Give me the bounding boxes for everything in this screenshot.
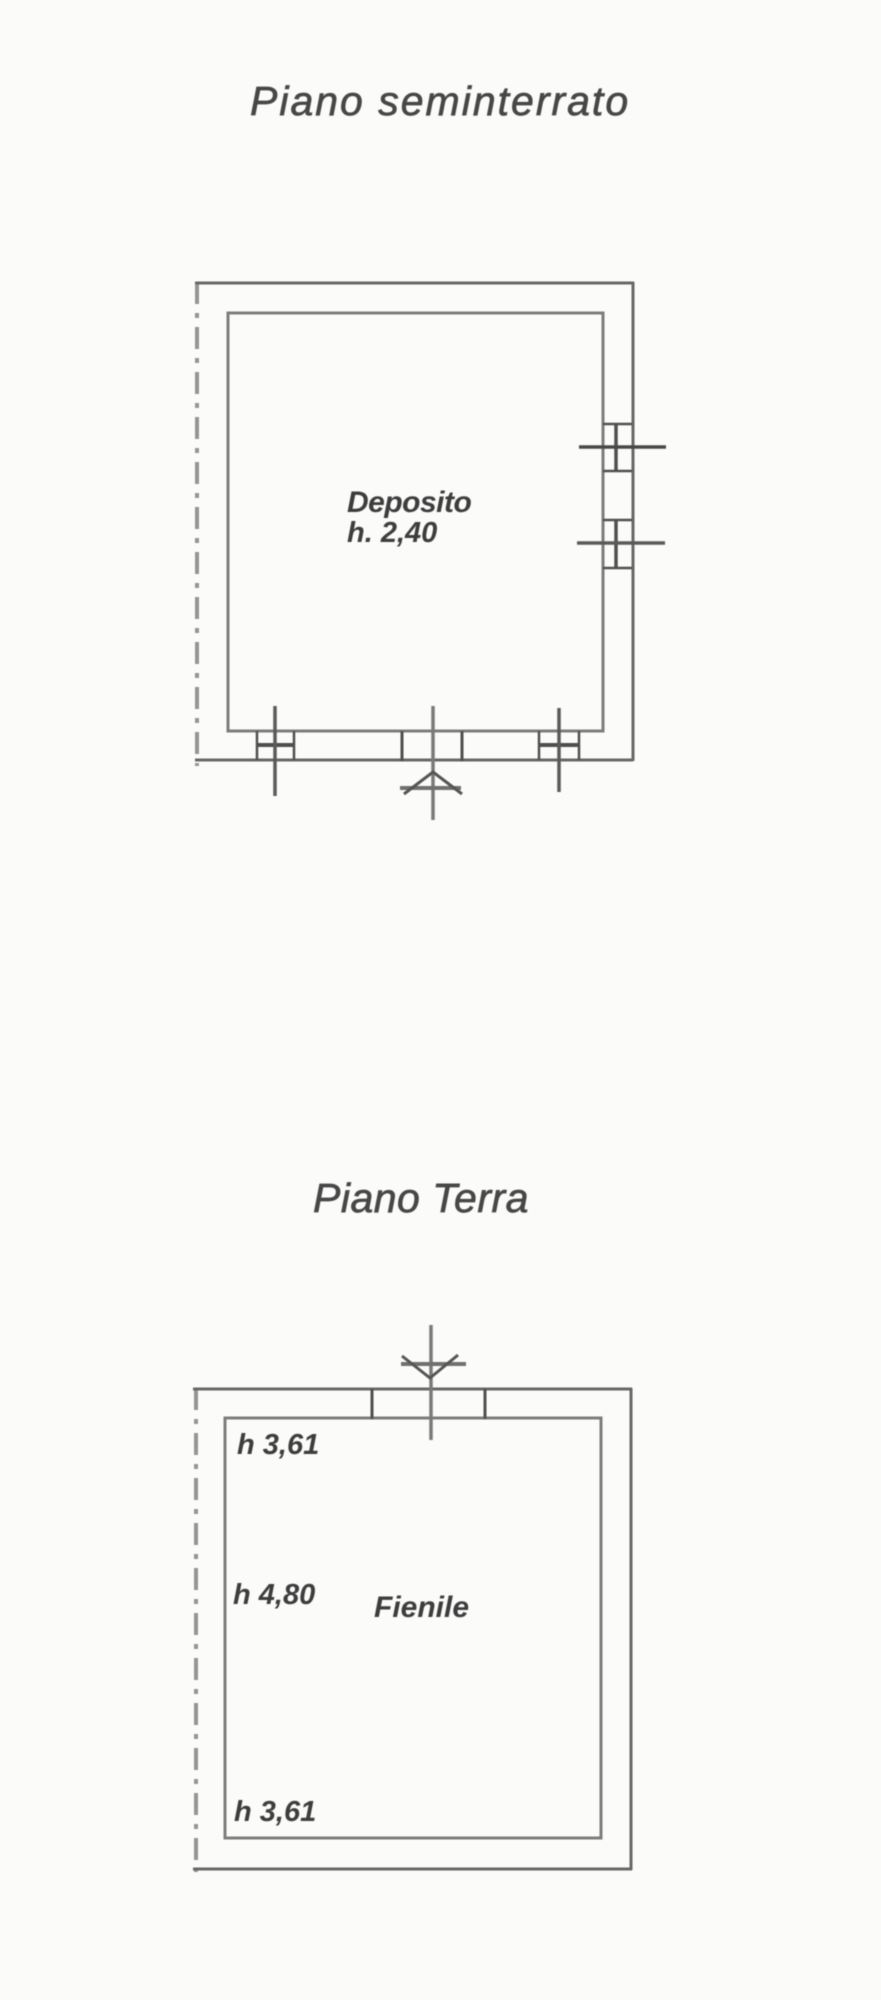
svg-text:h 4,80: h 4,80 — [233, 1579, 315, 1611]
svg-text:Piano seminterrato: Piano seminterrato — [250, 78, 630, 124]
svg-text:Deposito: Deposito — [347, 486, 472, 519]
svg-text:h 3,61: h 3,61 — [234, 1796, 316, 1828]
svg-text:h. 2,40: h. 2,40 — [347, 517, 437, 549]
svg-text:Piano Terra: Piano Terra — [313, 1175, 529, 1221]
svg-text:h 3,61: h 3,61 — [237, 1429, 319, 1461]
svg-text:Fienile: Fienile — [374, 1591, 469, 1624]
